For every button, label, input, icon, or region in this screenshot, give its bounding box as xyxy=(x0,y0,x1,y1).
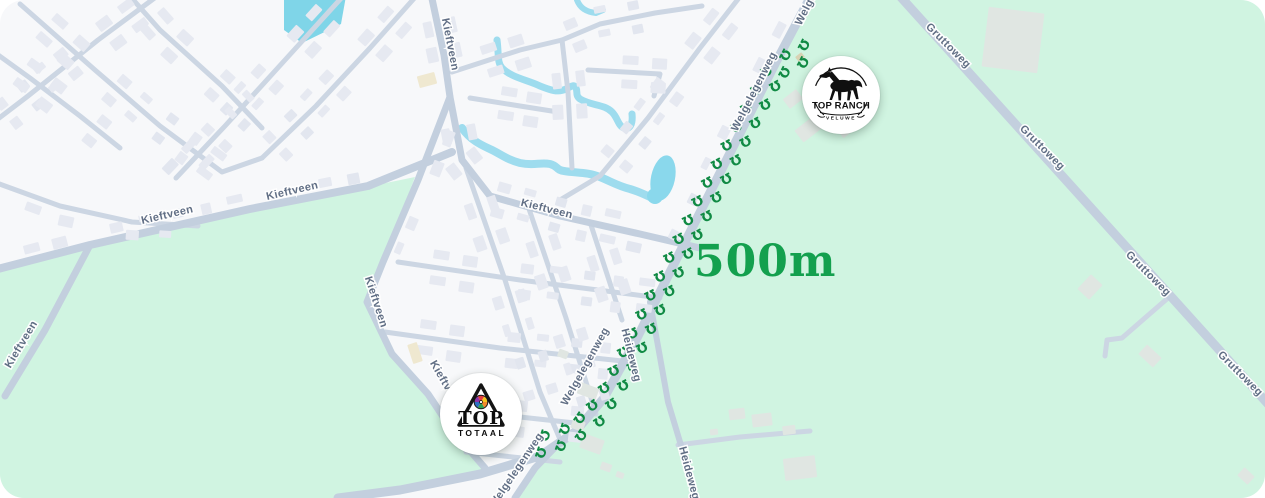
building xyxy=(548,221,561,233)
building xyxy=(557,349,569,360)
building xyxy=(262,130,277,145)
building xyxy=(23,242,41,255)
building xyxy=(487,64,505,77)
building xyxy=(68,65,84,81)
road-minor xyxy=(470,98,558,112)
building xyxy=(284,109,298,123)
building xyxy=(586,255,600,273)
building xyxy=(522,389,535,402)
building xyxy=(581,204,593,217)
building xyxy=(492,295,505,310)
building xyxy=(982,7,1045,73)
base-map-svg: ΩΩΩΩΩΩΩΩΩΩΩΩΩΩΩΩΩΩΩΩΩΩΩΩΩΩΩΩΩΩΩΩΩΩΩΩΩΩΩΩ… xyxy=(0,0,1265,498)
building xyxy=(57,214,74,228)
building xyxy=(516,213,529,223)
building xyxy=(514,56,532,71)
building xyxy=(405,216,419,232)
distance-label: 500m xyxy=(694,236,836,287)
building xyxy=(638,136,652,150)
building xyxy=(300,126,314,140)
building xyxy=(552,105,564,121)
building xyxy=(576,103,588,119)
horseshoe-icon: Ω xyxy=(708,154,725,172)
building xyxy=(462,255,478,268)
building xyxy=(599,233,616,244)
building xyxy=(553,334,566,349)
building xyxy=(625,241,642,254)
building xyxy=(464,203,478,221)
building xyxy=(268,79,284,95)
building xyxy=(497,181,512,194)
building xyxy=(96,114,112,130)
building xyxy=(336,85,352,101)
building xyxy=(24,201,42,215)
building xyxy=(140,92,154,105)
building xyxy=(242,89,255,103)
building xyxy=(495,227,510,245)
building xyxy=(502,324,512,338)
building xyxy=(417,72,437,88)
building xyxy=(653,112,666,126)
building xyxy=(597,368,608,380)
building xyxy=(619,159,634,174)
building xyxy=(598,28,611,37)
building xyxy=(580,296,592,306)
horseshoe-icon: Ω xyxy=(698,172,715,190)
building xyxy=(669,91,685,107)
horseshoe-icon: Ω xyxy=(642,285,658,303)
building xyxy=(304,41,322,59)
marker-top-ranch-subtitle: VELUWE xyxy=(826,116,856,122)
building xyxy=(200,122,215,137)
building xyxy=(537,334,550,342)
horseshoe-icon: Ω xyxy=(679,210,696,228)
building xyxy=(157,7,174,25)
building xyxy=(159,230,171,238)
building xyxy=(9,115,24,130)
building xyxy=(751,412,772,427)
marker-top-totaal-line1: TOP xyxy=(458,408,504,429)
building xyxy=(728,408,745,421)
building xyxy=(101,92,117,108)
building xyxy=(572,39,588,53)
building xyxy=(563,17,579,31)
marker-top-ranch[interactable]: TOP RANCH VELUWE xyxy=(802,56,880,134)
building xyxy=(317,104,330,118)
building xyxy=(429,275,446,286)
building xyxy=(610,301,621,313)
building xyxy=(279,147,294,162)
building xyxy=(394,241,405,255)
building xyxy=(548,233,562,251)
building xyxy=(226,194,243,205)
pond-small-lobe xyxy=(647,188,663,204)
building xyxy=(433,249,450,260)
building xyxy=(347,172,361,185)
building xyxy=(501,86,518,97)
building xyxy=(545,382,558,395)
building xyxy=(465,146,483,165)
building xyxy=(783,455,817,481)
road-minor xyxy=(128,0,262,128)
building xyxy=(126,230,140,241)
building xyxy=(445,162,463,181)
building xyxy=(151,131,165,145)
building xyxy=(204,87,220,103)
building xyxy=(318,69,334,85)
building xyxy=(632,24,645,35)
building xyxy=(472,235,487,253)
building xyxy=(639,277,656,287)
building xyxy=(395,21,412,39)
building xyxy=(782,425,796,436)
building xyxy=(507,33,525,48)
building xyxy=(250,63,266,79)
building xyxy=(220,69,236,85)
building xyxy=(109,221,124,234)
marker-top-totaal-line2: TOTAAL xyxy=(458,428,506,438)
building xyxy=(520,263,534,275)
building xyxy=(609,247,623,265)
building xyxy=(703,46,721,65)
building xyxy=(525,317,535,331)
building xyxy=(318,177,332,188)
building xyxy=(375,44,393,63)
building xyxy=(166,112,180,126)
building xyxy=(422,21,434,39)
building xyxy=(575,229,587,242)
marker-top-ranch-title: TOP RANCH xyxy=(812,101,870,112)
building xyxy=(622,55,638,65)
building xyxy=(160,46,179,64)
map-canvas[interactable]: ΩΩΩΩΩΩΩΩΩΩΩΩΩΩΩΩΩΩΩΩΩΩΩΩΩΩΩΩΩΩΩΩΩΩΩΩΩΩΩΩ… xyxy=(0,0,1265,498)
building xyxy=(584,270,596,280)
building xyxy=(116,74,132,90)
horseshoe-icon: Ω xyxy=(661,247,678,265)
building xyxy=(710,429,719,436)
building xyxy=(35,96,54,114)
building xyxy=(534,273,549,291)
building xyxy=(604,208,621,219)
building xyxy=(633,97,646,111)
building xyxy=(621,79,637,89)
building xyxy=(551,73,562,90)
building xyxy=(600,144,615,159)
building xyxy=(722,22,739,40)
building xyxy=(420,319,437,330)
building xyxy=(81,133,97,149)
building xyxy=(109,34,128,52)
building xyxy=(300,88,313,102)
building xyxy=(526,91,543,104)
building xyxy=(237,118,251,132)
building xyxy=(51,13,69,30)
building xyxy=(497,110,514,121)
road-minor xyxy=(562,40,572,168)
building xyxy=(524,188,537,198)
building xyxy=(445,350,461,363)
building xyxy=(575,70,586,87)
building xyxy=(525,241,539,259)
building xyxy=(449,324,465,337)
building xyxy=(124,110,138,123)
marker-top-totaal[interactable]: TOP TOTAAL xyxy=(440,373,522,455)
building xyxy=(652,58,668,70)
building xyxy=(458,281,474,294)
building xyxy=(522,115,539,128)
building xyxy=(200,202,212,215)
building xyxy=(425,47,439,64)
map-stage: ΩΩΩΩΩΩΩΩΩΩΩΩΩΩΩΩΩΩΩΩΩΩΩΩΩΩΩΩΩΩΩΩΩΩΩΩΩΩΩΩ… xyxy=(0,0,1265,498)
building xyxy=(627,0,640,11)
